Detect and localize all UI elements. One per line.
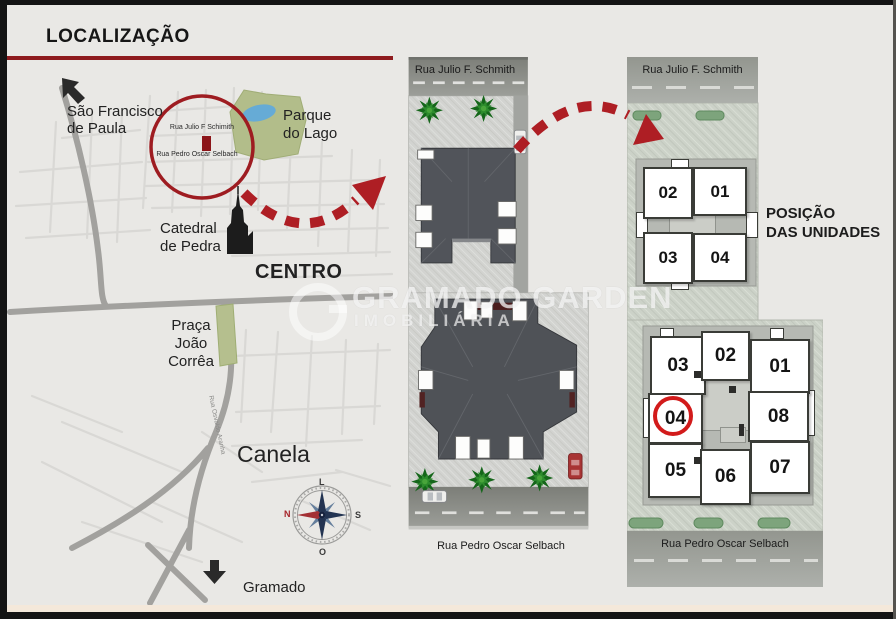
tree xyxy=(468,466,495,493)
unit-02-top: 02 xyxy=(643,167,693,219)
compass-letter-s: S xyxy=(355,510,361,520)
compass-letter-o: O xyxy=(319,547,326,557)
frame-border-bottom xyxy=(0,612,896,619)
unitspanel-street-bottom: Rua Pedro Oscar Selbach xyxy=(627,538,823,550)
label-gramado: Gramado xyxy=(243,579,306,596)
siteplan-street-top: Rua Julio F. Schmith xyxy=(399,64,531,76)
frame-border-top xyxy=(0,0,896,5)
compass-rose xyxy=(293,486,351,544)
frame-inner-line xyxy=(0,605,896,612)
unit-02-bottom: 02 xyxy=(701,331,750,381)
tree xyxy=(526,464,553,491)
unit-03-top: 03 xyxy=(643,232,693,284)
stair-marker xyxy=(694,457,701,464)
car-white-street xyxy=(422,491,446,503)
label-rua-julio-schimith: Rua Julio F Schimith xyxy=(164,124,240,131)
title-underline xyxy=(0,56,393,60)
unit-04-top: 04 xyxy=(693,233,747,282)
unit-03-bottom: 03 xyxy=(650,336,706,395)
site-plan-aerial xyxy=(399,57,598,590)
unit-01-top: 01 xyxy=(693,167,747,216)
frame-border-left xyxy=(0,0,7,619)
car-white-parked xyxy=(514,130,526,153)
unit-08-bottom: 08 xyxy=(748,391,809,442)
stair-marker xyxy=(739,424,744,436)
compass-letter-n: N xyxy=(284,509,291,519)
unit-06-bottom: 06 xyxy=(700,449,751,505)
floorplan-tab xyxy=(746,212,758,238)
site-marker xyxy=(202,136,211,151)
label-centro: CENTRO xyxy=(255,264,342,281)
arrow-gramado-icon xyxy=(203,560,226,584)
stair-marker xyxy=(729,386,736,393)
tree xyxy=(470,95,497,122)
compass-letter-l: L xyxy=(319,477,325,487)
label-rua-pedro-selbach: Rua Pedro Oscar Selbach xyxy=(155,151,239,158)
tree xyxy=(416,97,443,124)
label-sao-francisco: São Francisco de Paula xyxy=(67,103,163,137)
unit-01-bottom: 01 xyxy=(750,339,810,394)
label-canela: Canela xyxy=(237,446,310,463)
location-infographic: 02 01 03 04 03 02 01 04 08 05 06 07 LOCA… xyxy=(0,0,896,619)
car-red-parked xyxy=(569,454,583,479)
page-title: LOCALIZAÇÃO xyxy=(46,26,190,48)
unit-05-bottom: 05 xyxy=(648,443,703,498)
label-catedral-de-pedra: Catedral de Pedra xyxy=(160,220,221,256)
label-parque-do-lago: Parque do Lago xyxy=(283,107,337,143)
siteplan-street-bottom: Rua Pedro Oscar Selbach xyxy=(408,540,594,552)
floorplan2-core xyxy=(699,377,753,431)
units-position-caption: POSIÇÃO DAS UNIDADES xyxy=(766,204,886,242)
road-top xyxy=(409,57,528,96)
label-praca-joao-correa: Praça João Corrêa xyxy=(150,317,232,371)
highlight-ring-unit-04 xyxy=(653,396,693,436)
unitspanel-street-top: Rua Julio F. Schmith xyxy=(627,64,758,76)
units-panel-background xyxy=(627,57,823,590)
floorplan-tab xyxy=(770,328,784,339)
stair-marker xyxy=(694,371,701,378)
unit-07-bottom: 07 xyxy=(750,441,810,494)
city-map xyxy=(7,5,393,606)
